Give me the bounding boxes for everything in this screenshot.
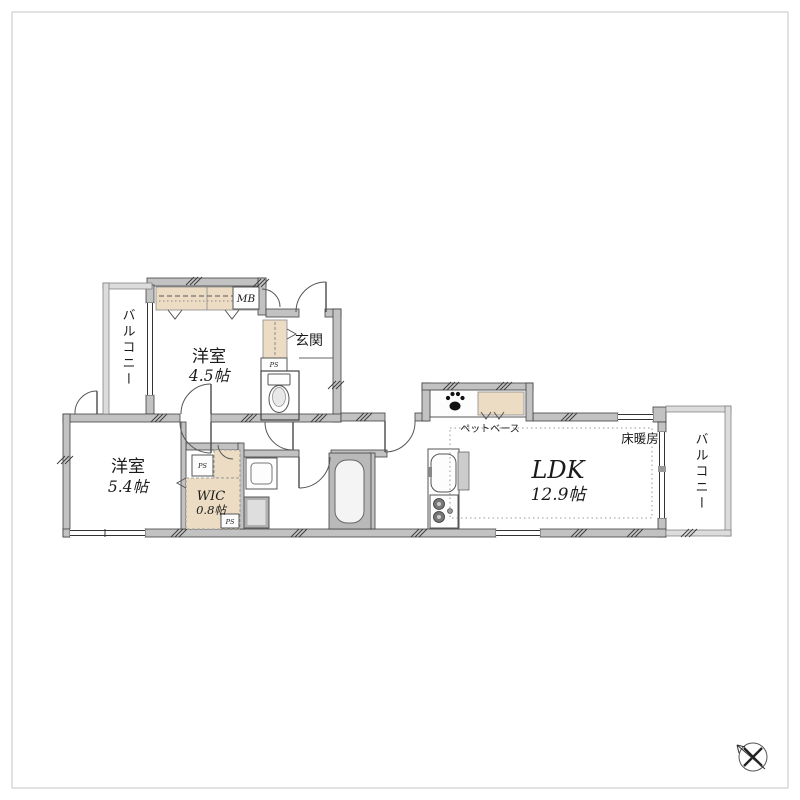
- room2-name: 洋室: [111, 457, 145, 477]
- room2-label: 洋室 5.4帖: [108, 457, 151, 496]
- shoe-cabinet: [263, 320, 296, 358]
- floor-plan-page: MB PS PS PS: [0, 0, 800, 800]
- kitchen: [428, 449, 469, 529]
- room2-size: 5.4帖: [108, 478, 151, 496]
- wic-label: WIC 0.8帖: [196, 489, 227, 517]
- entrance-label: 玄関: [295, 332, 323, 349]
- washroom: [244, 458, 277, 528]
- floor-plan-canvas: MB PS PS PS: [0, 0, 800, 800]
- ldk-size: 12.9帖: [531, 485, 589, 505]
- mb-label: MB: [236, 293, 256, 305]
- bathroom: [329, 453, 371, 529]
- room1-name: 洋室: [192, 347, 226, 367]
- wic-name: WIC: [197, 489, 225, 504]
- pet-base-label: ペットベース: [460, 423, 520, 435]
- room1-size: 4.5帖: [188, 367, 232, 385]
- wic-size: 0.8帖: [196, 503, 227, 517]
- compass-icon: [737, 743, 767, 771]
- ldk-name: LDK: [530, 456, 586, 484]
- meter-box: MB: [233, 287, 280, 309]
- pet-base: [430, 390, 526, 419]
- balcony-left-label: バルコニー: [120, 308, 136, 388]
- ps-label-3: PS: [225, 518, 235, 526]
- room1-label: 洋室 4.5帖: [188, 347, 232, 385]
- balcony-right-label: バルコニー: [693, 432, 709, 512]
- toilet-icon: [268, 374, 290, 413]
- ps-label-2: PS: [197, 462, 207, 470]
- toilet-room: [261, 371, 299, 420]
- floor-heating-label: 床暖房: [621, 431, 659, 446]
- ldk-label: LDK 12.9帖: [530, 456, 588, 505]
- pipe-space-entrance: PS: [261, 358, 287, 371]
- ps-label-1: PS: [269, 361, 279, 369]
- bathtub-icon: [335, 460, 364, 523]
- image-border: [12, 12, 788, 788]
